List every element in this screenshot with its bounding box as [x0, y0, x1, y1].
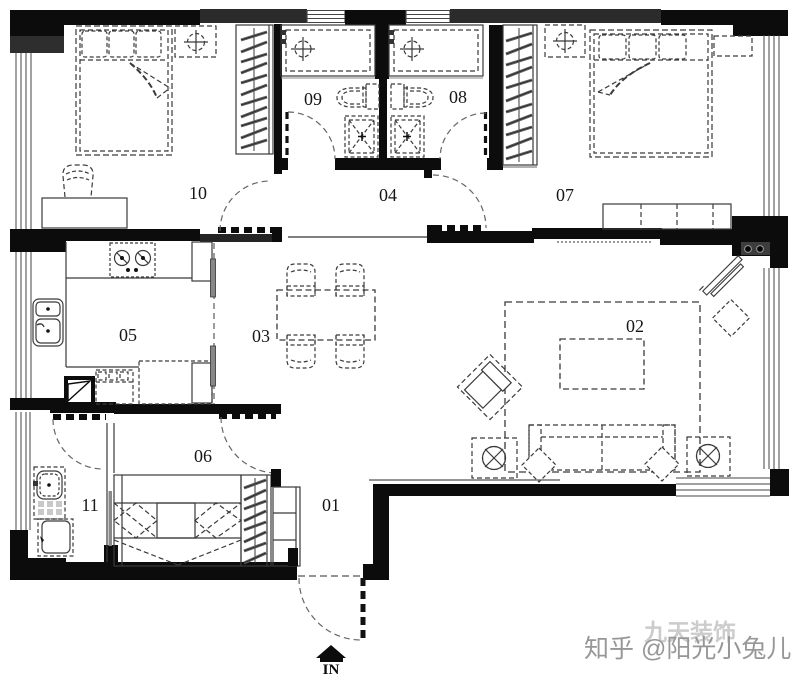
svg-text:04: 04	[379, 185, 397, 205]
svg-text:08: 08	[449, 87, 467, 107]
svg-text:IN: IN	[323, 662, 340, 678]
svg-text:知乎 @阳光小兔儿: 知乎 @阳光小兔儿	[584, 635, 791, 663]
svg-text:10: 10	[189, 183, 207, 203]
svg-text:02: 02	[626, 316, 644, 336]
svg-text:03: 03	[252, 326, 270, 346]
svg-text:01: 01	[322, 495, 340, 515]
svg-text:09: 09	[304, 89, 322, 109]
svg-text:06: 06	[194, 446, 212, 466]
svg-text:05: 05	[119, 325, 137, 345]
svg-text:11: 11	[81, 495, 98, 515]
svg-text:07: 07	[556, 185, 574, 205]
